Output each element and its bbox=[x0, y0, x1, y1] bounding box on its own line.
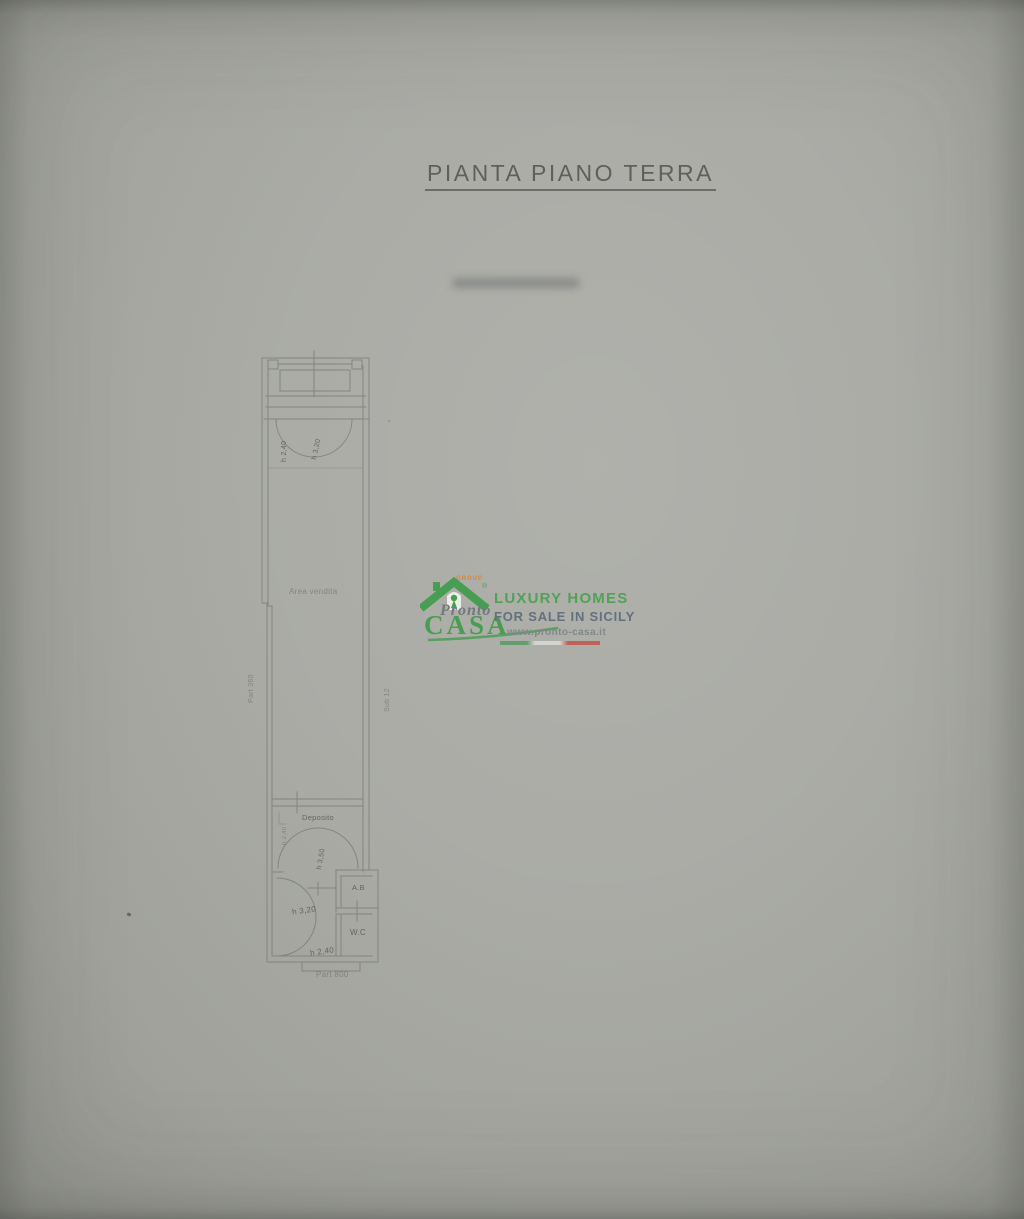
cadastral-label-bottom: Part 800 bbox=[316, 970, 349, 979]
wall-left-inner bbox=[268, 366, 272, 956]
cadastral-label-left: Part 360 bbox=[248, 674, 255, 703]
room-label-wc: W.C bbox=[350, 928, 366, 937]
italian-flag-bar bbox=[500, 641, 600, 645]
scan-speck bbox=[388, 420, 390, 422]
tagline-for-sale: FOR SALE IN SICILY bbox=[494, 609, 614, 624]
cadastral-label-right: Sub 12 bbox=[384, 688, 391, 712]
room-label-ab: A.B bbox=[352, 883, 365, 892]
entrance-pier-left bbox=[268, 360, 278, 369]
tagline-luxury-homes: LUXURY HOMES bbox=[494, 590, 614, 607]
height-label-entrance-left: h 2,40 bbox=[281, 441, 288, 462]
bath-door-swing bbox=[277, 878, 316, 956]
room-label-deposito: Deposito bbox=[302, 813, 334, 822]
deposito-door-jamb bbox=[279, 812, 286, 824]
room-label-area-vendita: Area vendita bbox=[289, 587, 338, 596]
wall-left-outer bbox=[262, 358, 267, 962]
pronto-casa-watermark: GROUP ® Pronto CASA LUXURY HOMES FOR SAL… bbox=[414, 552, 614, 644]
entrance-pier-right bbox=[352, 360, 362, 369]
website-url: www.pronto-casa.it bbox=[507, 627, 614, 638]
height-label-deposito-door: h 2,40 bbox=[282, 827, 288, 845]
entrance-step-1 bbox=[280, 370, 350, 391]
wall-annex-right bbox=[369, 870, 378, 962]
